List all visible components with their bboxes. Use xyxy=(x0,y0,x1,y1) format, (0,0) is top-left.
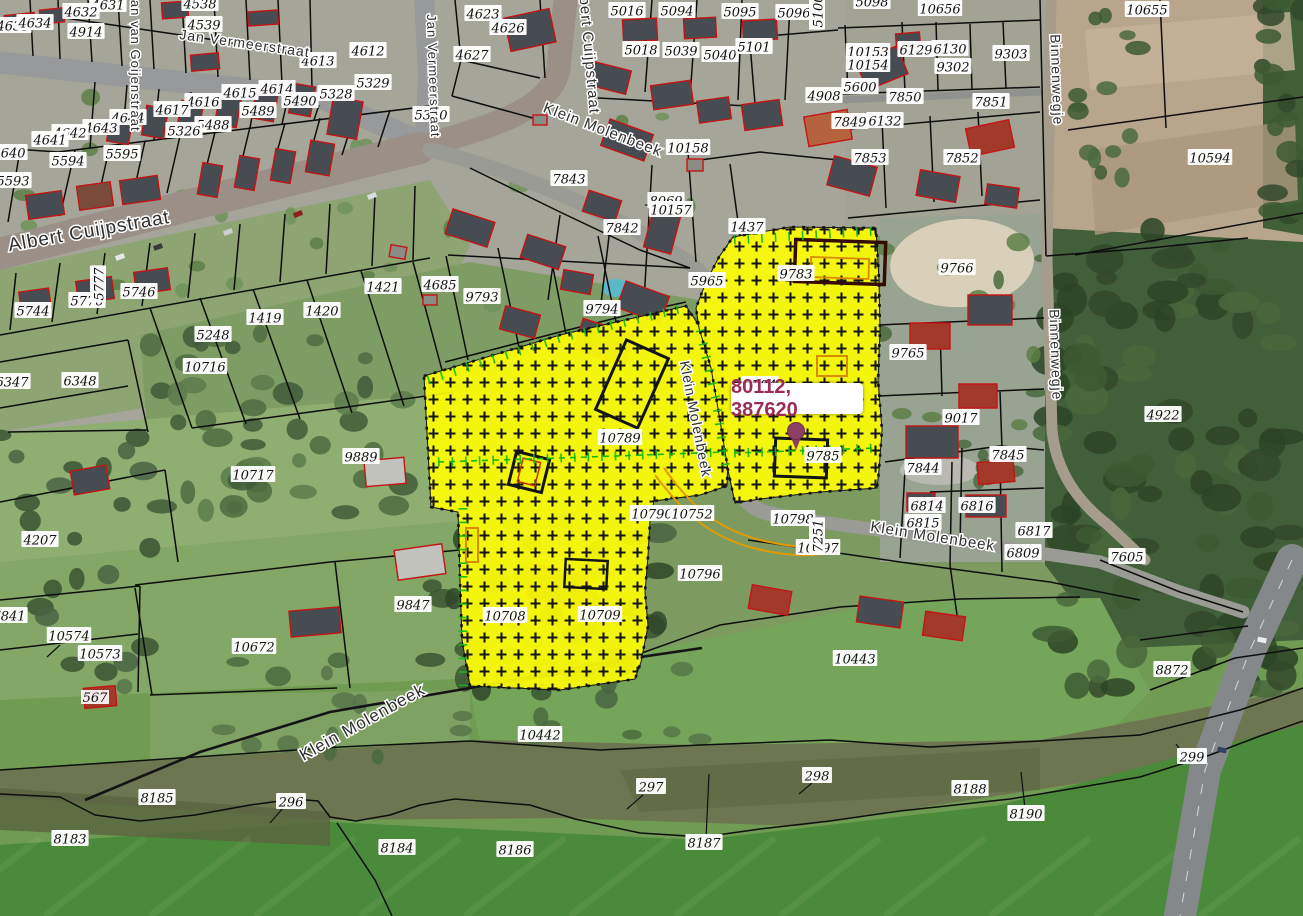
parcel-label: 4641 xyxy=(31,131,68,149)
parcel-label: 1437 xyxy=(728,218,765,236)
svg-text:298: 298 xyxy=(804,770,830,785)
svg-text:296: 296 xyxy=(278,796,304,811)
parcel-label: 5098 xyxy=(853,0,890,11)
svg-text:6348: 6348 xyxy=(63,375,96,390)
svg-text:7841: 7841 xyxy=(0,610,26,625)
svg-text:6130: 6130 xyxy=(933,43,966,58)
svg-text:4207: 4207 xyxy=(22,534,57,549)
svg-text:10672: 10672 xyxy=(233,641,274,656)
parcel-label: 6814 xyxy=(908,497,945,515)
svg-text:10716: 10716 xyxy=(184,361,225,376)
parcel-label: 297 xyxy=(636,778,666,796)
svg-text:5095: 5095 xyxy=(723,6,756,21)
svg-text:10796: 10796 xyxy=(679,568,720,583)
parcel-label: 4634 xyxy=(16,14,53,32)
parcel-label: 4685 xyxy=(421,276,458,294)
parcel-label: 4922 xyxy=(1144,406,1181,424)
svg-text:8183: 8183 xyxy=(53,833,86,848)
svg-text:1419: 1419 xyxy=(248,312,281,327)
svg-text:9303: 9303 xyxy=(994,48,1027,63)
parcel-label: 7605 xyxy=(1108,548,1145,566)
svg-text:10154: 10154 xyxy=(847,59,888,74)
parcel-label: 8186 xyxy=(496,841,533,859)
parcel-label: 5329 xyxy=(354,74,391,92)
svg-text:9794: 9794 xyxy=(585,303,618,318)
parcel-label: 4612 xyxy=(349,42,386,60)
svg-text:4626: 4626 xyxy=(490,22,524,37)
parcel-label: 9303 xyxy=(992,45,1029,63)
house-number-label: 567 xyxy=(81,690,109,706)
parcel-label: 7843 xyxy=(550,170,587,188)
svg-text:8185: 8185 xyxy=(140,792,173,807)
parcel-label: 7844 xyxy=(904,459,941,477)
parcel-label: 5096 xyxy=(775,4,812,22)
parcel-label: 10154 xyxy=(846,56,891,74)
parcel-label: 7853 xyxy=(851,149,888,167)
parcel-label: 5100 xyxy=(809,0,827,30)
svg-text:7844: 7844 xyxy=(906,462,939,477)
parcel-label: 9783 xyxy=(777,265,814,283)
svg-text:8188: 8188 xyxy=(953,783,986,798)
parcel-label: 4914 xyxy=(67,23,104,41)
parcel-label: 5593 xyxy=(0,172,32,190)
parcel-label: 296 xyxy=(276,793,306,811)
parcel-label: 5326 xyxy=(165,122,202,140)
svg-text:5777: 5777 xyxy=(93,267,108,301)
parcel-label: 6347 xyxy=(0,373,31,391)
svg-text:9847: 9847 xyxy=(396,599,430,614)
parcel-label: 7849 xyxy=(831,113,868,131)
svg-text:10655: 10655 xyxy=(1126,4,1167,19)
parcel-label: 10656 xyxy=(918,0,963,18)
svg-text:10594: 10594 xyxy=(1189,152,1230,167)
parcel-label: 9847 xyxy=(394,596,431,614)
parcel-label: 10798 xyxy=(771,510,816,528)
parcel-label: 9794 xyxy=(583,300,620,318)
svg-text:8186: 8186 xyxy=(498,844,531,859)
parcel-label: 5248 xyxy=(194,326,231,344)
svg-text:567: 567 xyxy=(83,691,109,706)
svg-text:6347: 6347 xyxy=(0,376,29,391)
svg-text:10656: 10656 xyxy=(919,3,960,18)
svg-text:7850: 7850 xyxy=(888,91,921,106)
parcel-label: 10716 xyxy=(183,358,228,376)
svg-text:4617: 4617 xyxy=(154,104,189,119)
svg-text:5490: 5490 xyxy=(283,95,316,110)
svg-text:9766: 9766 xyxy=(940,262,973,277)
svg-text:9793: 9793 xyxy=(465,291,498,306)
svg-text:4627: 4627 xyxy=(454,49,489,64)
svg-text:7845: 7845 xyxy=(991,449,1024,464)
parcel-label: 9889 xyxy=(342,448,379,466)
svg-text:4640: 4640 xyxy=(0,147,26,162)
svg-text:4612: 4612 xyxy=(350,45,384,60)
parcel-label: 9785 xyxy=(804,447,841,465)
parcel-label: 6130 xyxy=(931,40,968,58)
svg-text:7251: 7251 xyxy=(812,519,827,552)
svg-text:6132: 6132 xyxy=(868,115,901,130)
svg-text:4538: 4538 xyxy=(182,0,216,13)
parcel-label: 7841 xyxy=(0,607,28,625)
parcel-label: 4626 xyxy=(489,19,526,37)
parcel-label: 6132 xyxy=(866,112,903,130)
svg-text:4632: 4632 xyxy=(63,6,97,21)
parcel-label: 8872 xyxy=(1153,661,1190,679)
street-name-label: Jan van Goijenstraat xyxy=(128,0,143,132)
svg-text:4908: 4908 xyxy=(806,90,840,105)
parcel-label: 6817 xyxy=(1015,522,1052,540)
street-name-label: Binnenwegje xyxy=(1047,34,1066,126)
svg-text:5595: 5595 xyxy=(105,148,138,163)
svg-text:7605: 7605 xyxy=(1110,551,1143,566)
svg-text:4634: 4634 xyxy=(17,17,51,32)
parcel-label: 10443 xyxy=(833,650,878,668)
svg-text:5965: 5965 xyxy=(690,275,723,290)
svg-text:4914: 4914 xyxy=(68,26,102,41)
parcel-label: 7842 xyxy=(603,219,640,237)
parcel-label: 10717 xyxy=(231,466,276,484)
parcel-label: 10708 xyxy=(483,607,528,625)
svg-text:10798: 10798 xyxy=(772,513,813,528)
parcel-label: 1421 xyxy=(364,278,401,296)
parcel-label: 5965 xyxy=(688,272,725,290)
parcel-label: 5101 xyxy=(735,38,772,56)
parcel-label: 4615 xyxy=(221,84,258,102)
parcel-label: 10672 xyxy=(232,638,277,656)
svg-text:5098: 5098 xyxy=(855,0,888,11)
svg-text:5593: 5593 xyxy=(0,175,30,190)
parcel-label: 5595 xyxy=(103,145,140,163)
svg-text:10573: 10573 xyxy=(79,648,120,663)
svg-text:4922: 4922 xyxy=(1145,409,1179,424)
street-name-label: Binnenwegje xyxy=(1046,309,1065,401)
parcel-label: 10574 xyxy=(47,627,92,645)
parcel-label: 7852 xyxy=(943,149,980,167)
parcel-label: 4617 xyxy=(153,101,190,119)
svg-text:7843: 7843 xyxy=(552,173,585,188)
parcel-label: 10709 xyxy=(578,606,623,624)
parcel-label: 4538 xyxy=(181,0,218,13)
svg-text:5100: 5100 xyxy=(812,0,827,28)
svg-text:6817: 6817 xyxy=(1017,525,1051,540)
parcel-label: 10796 xyxy=(678,565,723,583)
svg-text:4615: 4615 xyxy=(222,87,256,102)
parcel-label: 7850 xyxy=(886,88,923,106)
parcel-label: 10790 xyxy=(630,505,675,523)
parcel-label: 8184 xyxy=(378,839,415,857)
parcel-label: 4627 xyxy=(453,46,490,64)
svg-text:5744: 5744 xyxy=(16,305,49,320)
svg-text:5600: 5600 xyxy=(843,81,876,96)
svg-text:10708: 10708 xyxy=(484,610,525,625)
svg-text:9765: 9765 xyxy=(891,347,924,362)
svg-text:5094: 5094 xyxy=(660,5,693,20)
parcel-label: 5600 xyxy=(841,78,878,96)
parcel-label: 5040 xyxy=(701,46,738,64)
svg-text:10158: 10158 xyxy=(667,142,708,157)
cadastral-map-viewport[interactable]: 4631463246354634491445384539462346264627… xyxy=(0,0,1303,916)
svg-text:8187: 8187 xyxy=(687,837,721,852)
parcel-label: 5490 xyxy=(281,92,318,110)
svg-text:5489: 5489 xyxy=(241,105,274,120)
parcel-label: 5039 xyxy=(662,42,699,60)
parcel-label: 8190 xyxy=(1007,805,1044,823)
svg-text:7849: 7849 xyxy=(833,116,866,131)
svg-text:5248: 5248 xyxy=(196,329,229,344)
parcel-label: 8183 xyxy=(51,830,88,848)
svg-text:1421: 1421 xyxy=(366,281,399,296)
svg-text:5096: 5096 xyxy=(777,7,810,22)
parcel-label: 7845 xyxy=(989,446,1026,464)
parcel-label: 10655 xyxy=(1125,1,1170,19)
svg-text:5326: 5326 xyxy=(167,125,200,140)
parcel-label: 8187 xyxy=(685,834,722,852)
parcel-label: 8188 xyxy=(951,780,988,798)
svg-text:6814: 6814 xyxy=(910,500,943,515)
svg-text:5101: 5101 xyxy=(737,41,770,56)
parcel-label: 5094 xyxy=(658,2,695,20)
parcel-label: 5594 xyxy=(49,152,86,170)
parcel-label: 9765 xyxy=(889,344,926,362)
svg-text:9785: 9785 xyxy=(806,450,839,465)
parcel-label: 6348 xyxy=(61,372,98,390)
parcel-label: 299 xyxy=(1177,748,1207,766)
parcel-label: 9302 xyxy=(934,58,971,76)
parcel-label: 4632 xyxy=(62,3,99,21)
svg-text:8184: 8184 xyxy=(380,842,413,857)
svg-text:5039: 5039 xyxy=(664,45,697,60)
parcel-label: 298 xyxy=(802,767,832,785)
parcel-label: 10442 xyxy=(518,726,563,744)
svg-text:10790: 10790 xyxy=(631,508,672,523)
parcel-label: 10573 xyxy=(78,645,123,663)
svg-text:10442: 10442 xyxy=(519,729,560,744)
svg-text:8190: 8190 xyxy=(1009,808,1042,823)
parcel-label: 4640 xyxy=(0,144,28,162)
parcel-label: 5328 xyxy=(317,85,354,103)
svg-text:10157: 10157 xyxy=(650,204,692,219)
svg-text:10752: 10752 xyxy=(671,508,712,523)
svg-text:6816: 6816 xyxy=(960,500,993,515)
map-canvas[interactable]: 4631463246354634491445384539462346264627… xyxy=(0,0,1303,916)
svg-text:6809: 6809 xyxy=(1006,547,1039,562)
parcel-label: 8185 xyxy=(138,789,175,807)
parcel-label: 5489 xyxy=(239,102,276,120)
svg-text:9302: 9302 xyxy=(936,61,969,76)
parcel-label: 6809 xyxy=(1004,544,1041,562)
parcel-label: 10157 xyxy=(649,201,694,219)
svg-text:7853: 7853 xyxy=(853,152,886,167)
parcel-label: 5018 xyxy=(622,41,659,59)
svg-text:1420: 1420 xyxy=(305,305,338,320)
parcel-label: 10158 xyxy=(666,139,711,157)
svg-text:1437: 1437 xyxy=(730,221,764,236)
svg-text:7851: 7851 xyxy=(974,96,1007,111)
parcel-label: 5777 xyxy=(90,265,108,302)
parcel-label: 6816 xyxy=(958,497,995,515)
svg-text:5746: 5746 xyxy=(122,286,155,301)
parcel-label: 7851 xyxy=(972,93,1009,111)
svg-text:8872: 8872 xyxy=(1155,664,1188,679)
coordinate-label: 80112, 387620 xyxy=(731,383,863,414)
svg-text:5329: 5329 xyxy=(356,77,389,92)
svg-text:10443: 10443 xyxy=(834,653,875,668)
svg-text:10574: 10574 xyxy=(48,630,89,645)
svg-text:6129: 6129 xyxy=(899,44,932,59)
parcel-label: 6129 xyxy=(897,41,934,59)
parcel-label: 1419 xyxy=(246,309,283,327)
parcel-label: 4908 xyxy=(805,87,842,105)
parcel-label: 5016 xyxy=(608,2,645,20)
svg-text:4641: 4641 xyxy=(32,134,66,149)
svg-text:297: 297 xyxy=(638,781,665,796)
parcel-label: 10752 xyxy=(670,505,715,523)
svg-text:4685: 4685 xyxy=(422,279,456,294)
parcel-label: 9017 xyxy=(942,409,979,427)
location-pin-icon[interactable] xyxy=(788,423,805,440)
parcel-label: 5095 xyxy=(721,3,758,21)
parcel-label: 5746 xyxy=(120,283,157,301)
parcel-label: 10594 xyxy=(1188,149,1233,167)
svg-text:9889: 9889 xyxy=(344,451,377,466)
svg-text:5016: 5016 xyxy=(610,5,643,20)
svg-text:10717: 10717 xyxy=(232,469,274,484)
parcel-label: 5744 xyxy=(14,302,51,320)
svg-text:5040: 5040 xyxy=(703,49,736,64)
svg-text:9783: 9783 xyxy=(779,268,812,283)
svg-text:10789: 10789 xyxy=(599,432,640,447)
svg-text:5018: 5018 xyxy=(624,44,657,59)
parcel-label: 9793 xyxy=(463,288,500,306)
svg-text:7852: 7852 xyxy=(945,152,978,167)
svg-text:5594: 5594 xyxy=(51,155,84,170)
svg-text:9017: 9017 xyxy=(944,412,978,427)
parcel-label: 9766 xyxy=(938,259,975,277)
parcel-label: 7251 xyxy=(809,517,827,554)
parcel-label: 1420 xyxy=(303,302,340,320)
svg-text:299: 299 xyxy=(1179,751,1205,766)
svg-text:5328: 5328 xyxy=(319,88,352,103)
svg-text:7842: 7842 xyxy=(605,222,638,237)
parcel-label: 4207 xyxy=(21,531,58,549)
svg-text:10709: 10709 xyxy=(579,609,620,624)
parcel-label: 10789 xyxy=(598,429,643,447)
